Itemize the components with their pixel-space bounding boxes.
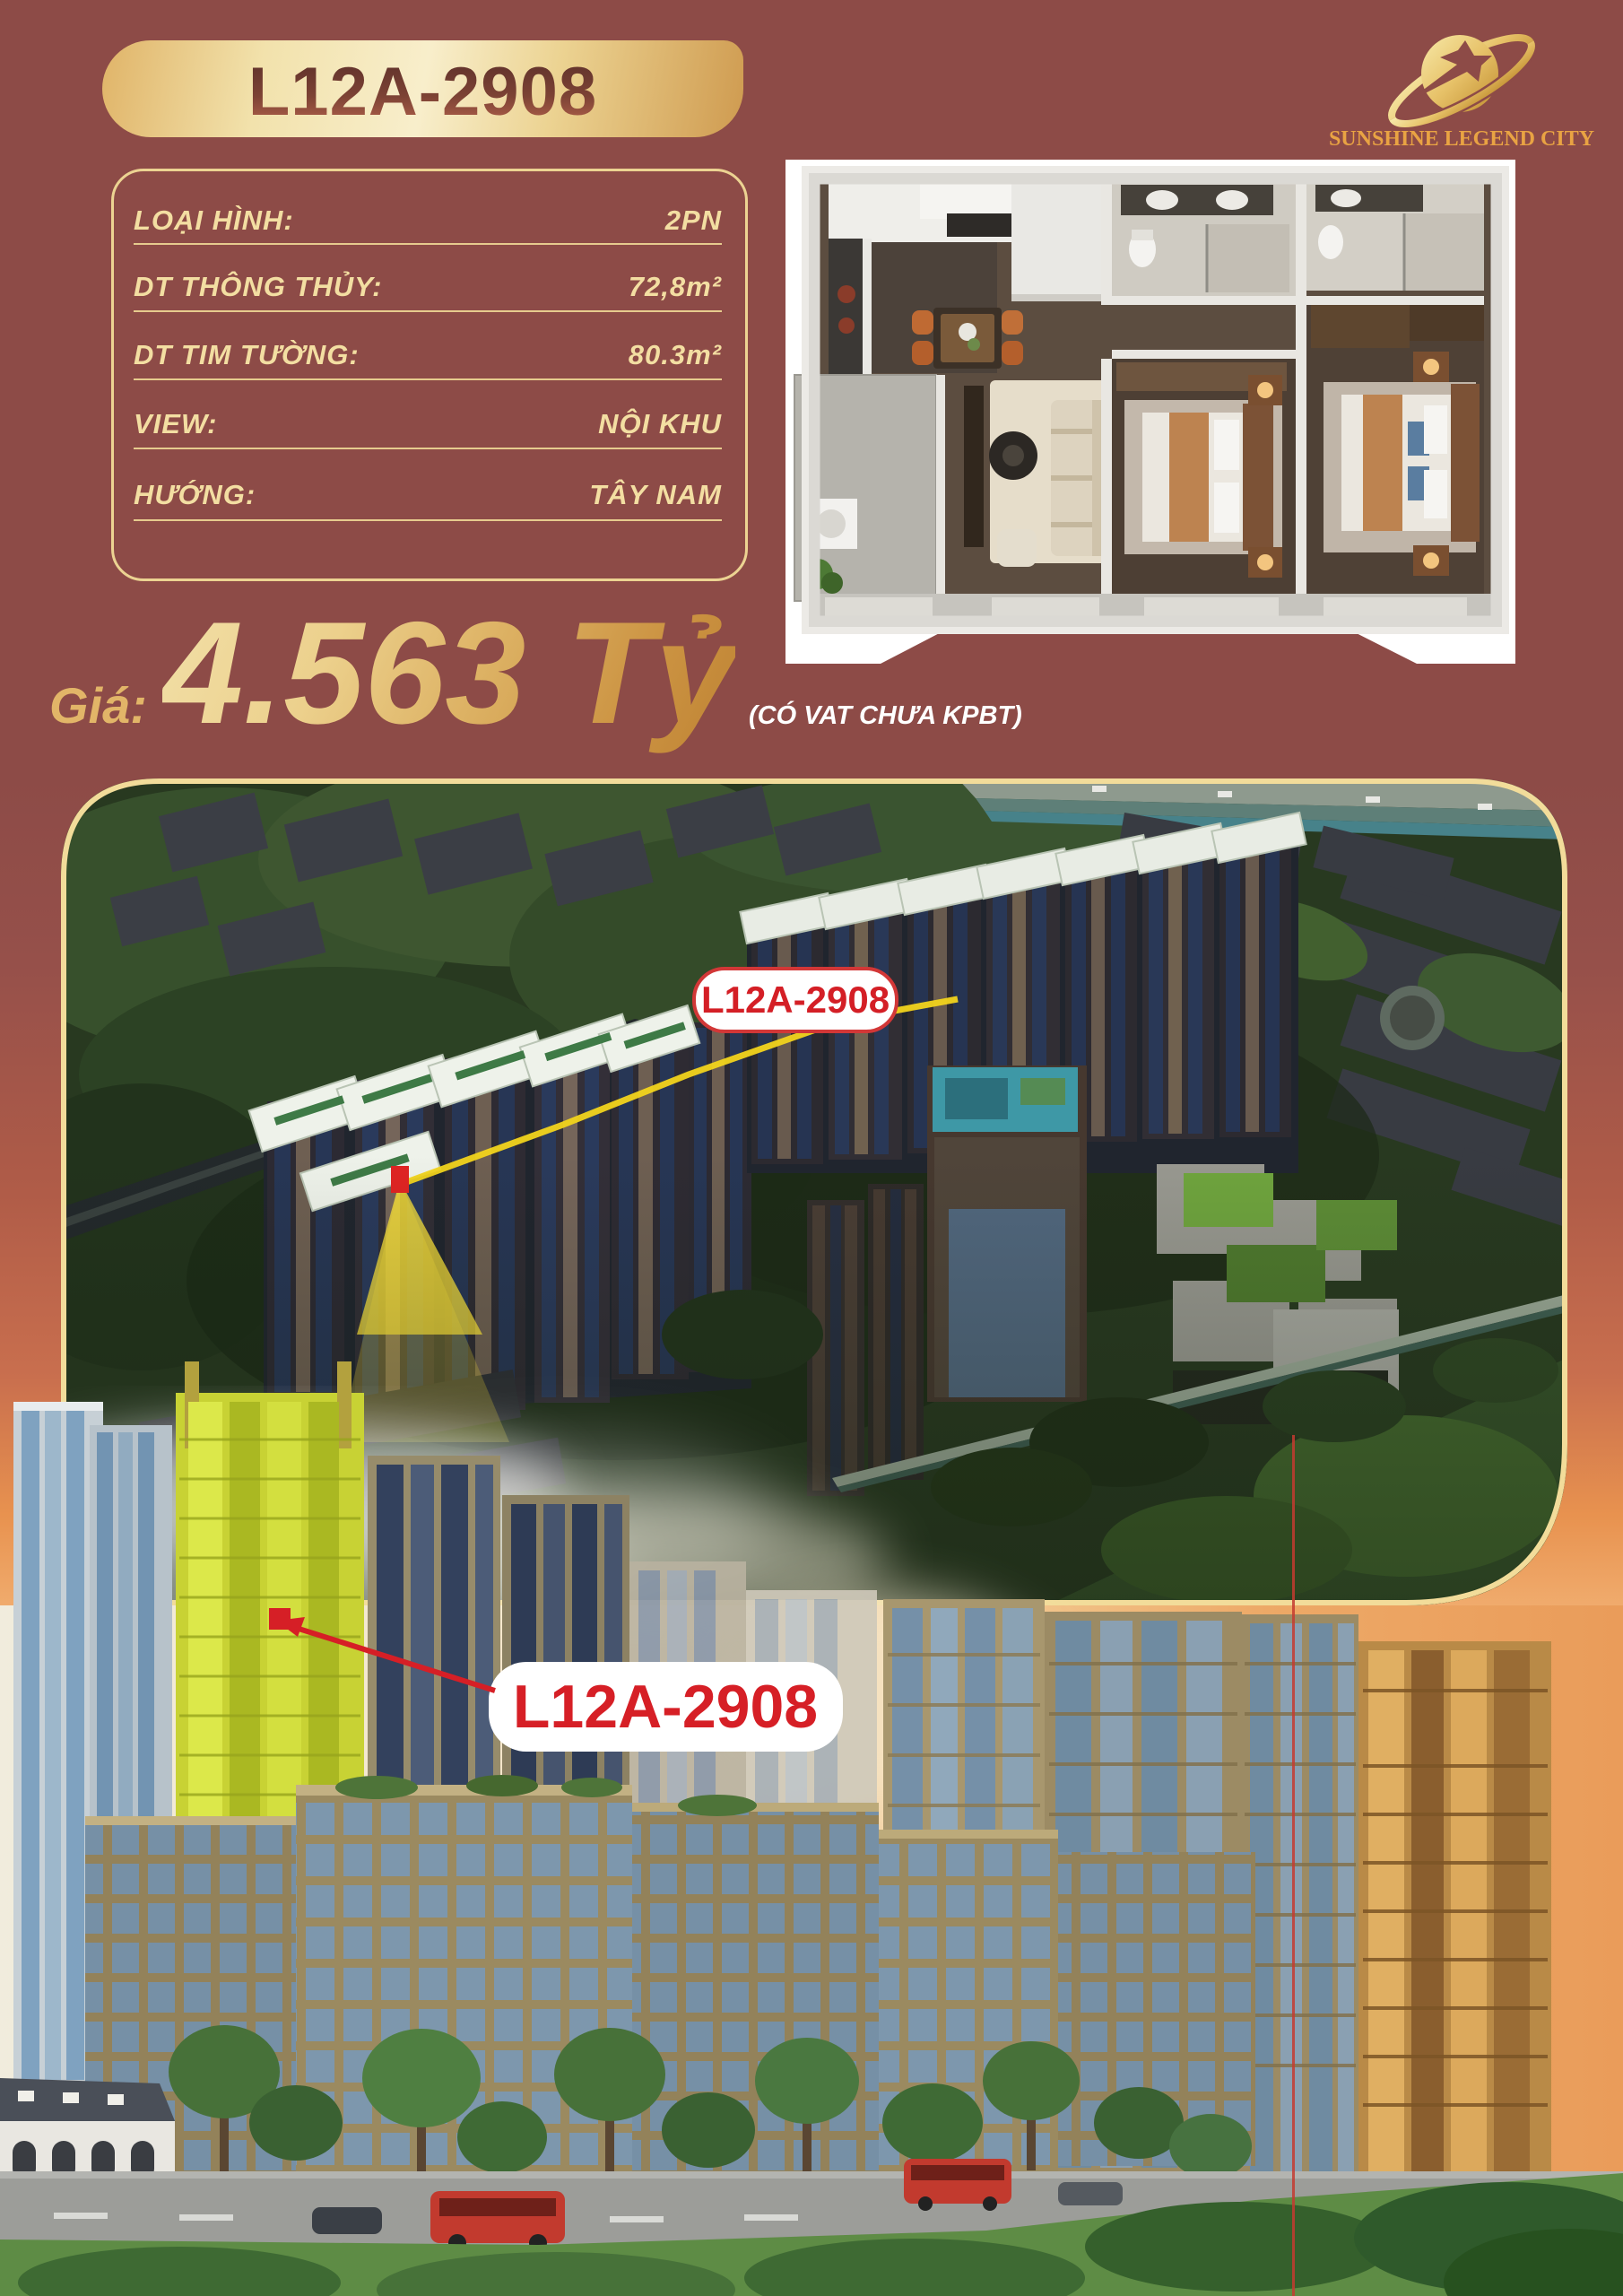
svg-text:L12A-2908: L12A-2908 — [513, 1673, 818, 1741]
svg-text:SUNSHINE LEGEND CITY: SUNSHINE LEGEND CITY — [1329, 127, 1594, 151]
svg-text:L12A-2908: L12A-2908 — [701, 978, 890, 1021]
